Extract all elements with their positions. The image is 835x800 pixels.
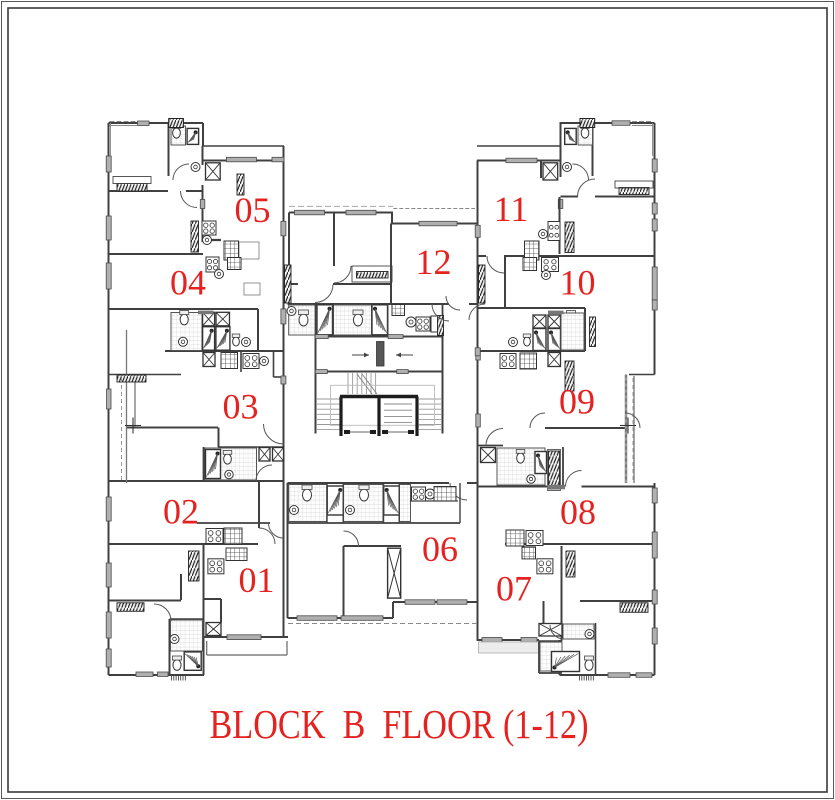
svg-text:05: 05 (235, 190, 271, 230)
svg-text:03: 03 (223, 387, 259, 427)
svg-text:02: 02 (163, 492, 199, 532)
svg-text:11: 11 (494, 189, 529, 229)
svg-text:09: 09 (559, 382, 595, 422)
svg-text:01: 01 (239, 560, 275, 600)
svg-text:06: 06 (422, 529, 458, 569)
svg-text:BLOCK B FLOOR (1-12): BLOCK B FLOOR (1-12) (210, 701, 589, 748)
svg-text:07: 07 (496, 569, 532, 609)
svg-text:08: 08 (560, 492, 596, 532)
svg-text:12: 12 (416, 242, 452, 282)
svg-text:10: 10 (560, 263, 596, 303)
svg-text:04: 04 (170, 263, 206, 303)
